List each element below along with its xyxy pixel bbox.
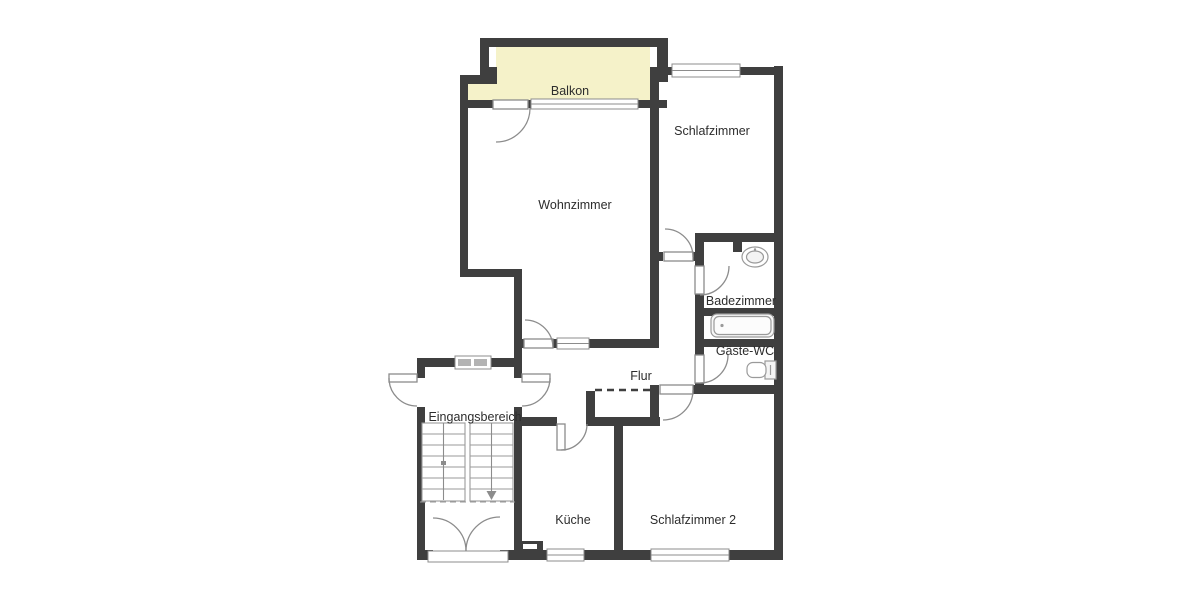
balcony-window: [531, 99, 638, 109]
entrance-double-door: [433, 517, 500, 551]
wall: [490, 358, 522, 367]
room-label-schlafzimmer: Schlafzimmer: [674, 124, 750, 138]
balcony-area: [468, 84, 496, 100]
room-label-badezimmer: Badezimmer: [706, 294, 776, 308]
wall: [460, 100, 493, 108]
bathroom-door: [695, 266, 729, 295]
room-label-flur: Flur: [630, 369, 652, 383]
wall: [417, 358, 425, 378]
entrance-door-sill: [428, 551, 508, 562]
wall: [695, 233, 783, 242]
wall: [656, 67, 672, 75]
balcony-slit: [650, 47, 657, 67]
wall: [614, 426, 623, 550]
kitchen-door: [557, 424, 587, 450]
bathtub-icon: [711, 314, 774, 337]
wall: [733, 242, 742, 252]
room-label-gaeste-wc: Gäste-WC: [716, 344, 774, 358]
toilet-icon: [747, 361, 776, 379]
floor-plan-svg: Balkon Schlafzimmer Wohnzimmer Badezimme…: [0, 0, 1200, 600]
bedroom-door: [664, 229, 693, 261]
wall: [695, 242, 704, 266]
floor-plan-page: Balkon Schlafzimmer Wohnzimmer Badezimme…: [0, 0, 1200, 600]
bedroom-window: [672, 64, 740, 77]
stairs-icon: [420, 423, 515, 502]
wall: [514, 407, 522, 560]
entrance-hall-door: [522, 374, 550, 406]
wall: [514, 339, 524, 348]
wall: [728, 550, 783, 560]
room-label-kueche: Küche: [555, 513, 590, 527]
wall: [586, 417, 660, 426]
wall: [650, 385, 659, 422]
room-label-wohnzimmer: Wohnzimmer: [538, 198, 611, 212]
balcony-slit: [489, 47, 496, 67]
wall: [650, 252, 663, 261]
wall: [695, 294, 704, 347]
chimney-slit: [523, 544, 537, 549]
wall: [695, 347, 704, 355]
bedroom2-window: [651, 549, 729, 561]
wall: [589, 339, 650, 348]
wall: [583, 550, 652, 560]
room-label-balkon: Balkon: [551, 84, 589, 98]
entrance-transom-window: [455, 356, 491, 369]
room-label-schlafzimmer2: Schlafzimmer 2: [650, 513, 736, 527]
livingroom-door: [524, 320, 553, 348]
livingroom-sidelight-window: [557, 338, 589, 349]
wall: [650, 74, 659, 348]
wall: [774, 66, 783, 560]
balcony-door: [493, 100, 530, 142]
wall: [460, 269, 521, 277]
room-label-eingangsbereich: Eingangsbereich: [428, 410, 521, 424]
sink-icon: [742, 247, 768, 267]
bedroom2-door: [660, 385, 693, 420]
kitchen-window: [547, 549, 584, 561]
wall: [740, 67, 774, 75]
wall: [693, 385, 783, 394]
entrance-side-door-left: [389, 374, 417, 406]
wall: [480, 38, 668, 47]
guest-wc-door: [695, 355, 728, 383]
